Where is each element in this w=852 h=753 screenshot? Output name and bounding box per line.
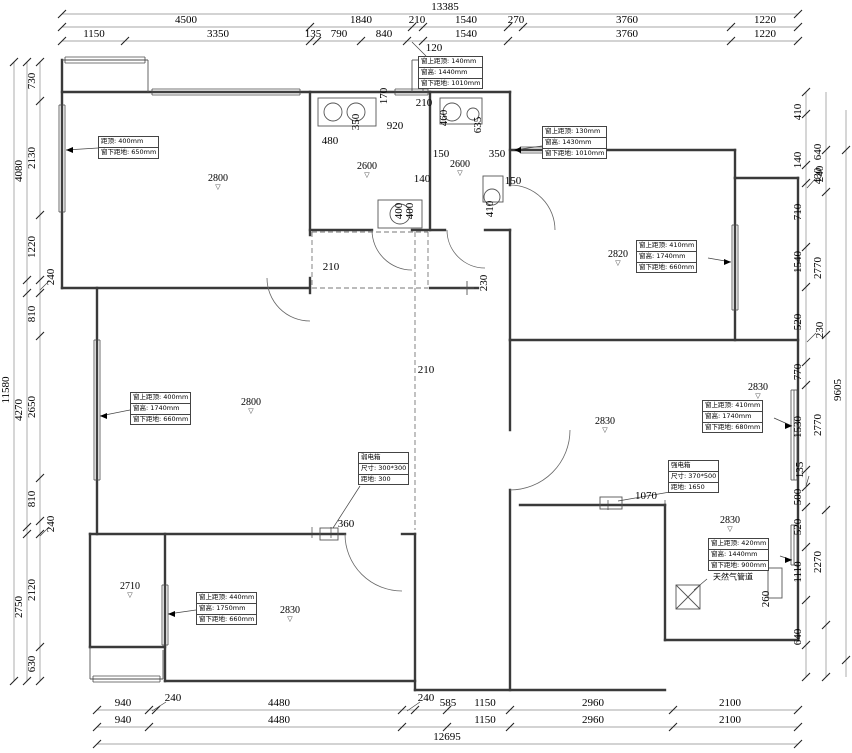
interior-dimension-label: 350 <box>350 114 362 131</box>
arrow-icon <box>66 147 73 153</box>
fixture-circle <box>324 103 342 121</box>
callout-line: 尺寸: 300*300 <box>359 464 408 475</box>
dimension-label: 2770 <box>812 257 824 279</box>
floor-height-triangle-icon: ▽ <box>457 171 462 176</box>
floor-height-triangle-icon: ▽ <box>287 617 292 622</box>
callout-box: 窗上距顶: 400mm窗高: 1740mm窗下距地: 660mm <box>130 392 191 425</box>
dimension-label: 1220 <box>754 28 776 40</box>
interior-dimension-label: 920 <box>387 120 404 132</box>
interior-dimension-label: 480 <box>322 135 339 147</box>
interior-dimension-label: 360 <box>338 518 355 530</box>
dimension-label: 2100 <box>719 714 741 726</box>
leader-label: 120 <box>426 42 443 54</box>
room-height-label: 2600▽ <box>450 160 470 176</box>
callout-line: 窗高: 1740mm <box>703 412 762 423</box>
interior-dimension-label: 260 <box>760 591 772 608</box>
interior-dimension-label: 350 <box>489 148 506 160</box>
dimension-label: 410 <box>792 104 804 121</box>
callout-line: 窗高: 1440mm <box>419 68 482 79</box>
dimension-label: 810 <box>26 306 38 323</box>
callout-line: 窗高: 1430mm <box>543 138 606 149</box>
callout-line: 窗下距地: 660mm <box>197 615 256 625</box>
dimension-label: 1540 <box>455 28 477 40</box>
dimension-label: 3350 <box>207 28 229 40</box>
dimension-label: 270 <box>508 14 525 26</box>
arrow-icon <box>514 147 521 153</box>
callout-box: 窗上距顶: 410mm窗高: 1740mm窗下距地: 660mm <box>636 240 697 273</box>
door-arc <box>447 230 485 268</box>
floor-height-triangle-icon: ▽ <box>364 173 369 178</box>
callout-line: 距地: 1650 <box>669 483 718 493</box>
dimension-label: 640 <box>792 629 804 646</box>
callout-line: 窗下距地: 1010mm <box>543 149 606 159</box>
callout-box: 距顶: 400mm窗下距地: 650mm <box>98 136 159 159</box>
callout-line: 弱电箱 <box>359 453 408 464</box>
dimension-label: 1150 <box>474 714 496 726</box>
interior-dimension-label: 140 <box>414 173 431 185</box>
leader-label: 240 <box>418 692 435 704</box>
dimension-label: 2100 <box>719 697 741 709</box>
dimension-label: 2650 <box>26 396 38 418</box>
callout-line: 窗下距地: 680mm <box>703 423 762 433</box>
callout-line: 窗上距顶: 140mm <box>419 57 482 68</box>
callout-line: 强电箱 <box>669 461 718 472</box>
dimension-label: 710 <box>792 204 804 221</box>
callout-line: 距地: 300 <box>359 475 408 485</box>
dimension-label: 630 <box>26 656 38 673</box>
dimension-label: 3760 <box>616 14 638 26</box>
room-height-label: 2820▽ <box>608 250 628 266</box>
dimension-label: 4080 <box>13 160 25 182</box>
dimension-label: 140 <box>792 152 804 169</box>
callout-line: 窗高: 1740mm <box>131 404 190 415</box>
dimension-label: 520 <box>792 519 804 536</box>
dimension-label: 1150 <box>474 697 496 709</box>
dimension-label: 2960 <box>582 714 604 726</box>
interior-dimension-label: 1070 <box>635 490 657 502</box>
dimension-label: 210 <box>409 14 426 26</box>
callout-box: 窗上距顶: 440mm窗高: 1750mm窗下距地: 660mm <box>196 592 257 625</box>
dimension-label: 2130 <box>26 147 38 169</box>
floor-plan-canvas: 1338545001840210154027037601220115033501… <box>0 0 852 753</box>
dimension-label: 4480 <box>268 714 290 726</box>
dimension-label: 1220 <box>754 14 776 26</box>
callout-line: 窗高: 1440mm <box>709 550 768 561</box>
floor-height-triangle-icon: ▽ <box>755 394 760 399</box>
interior-dimension-label: 170 <box>378 88 390 105</box>
callout-line: 窗下距地: 1010mm <box>419 79 482 89</box>
dimension-label: 1220 <box>26 236 38 258</box>
leader-label: 135 <box>794 462 806 479</box>
callout-line: 窗高: 1740mm <box>637 252 696 263</box>
arrow-icon <box>724 259 731 265</box>
dimension-label: 500 <box>792 489 804 506</box>
leader-label: 240 <box>45 269 57 286</box>
floor-height-triangle-icon: ▽ <box>127 593 132 598</box>
leader-label: 240 <box>45 516 57 533</box>
room-height-label: 2710▽ <box>120 582 140 598</box>
dimension-label: 770 <box>792 364 804 381</box>
callout-line: 窗上距顶: 440mm <box>197 593 256 604</box>
callout-box: 窗上距顶: 140mm窗高: 1440mm窗下距地: 1010mm <box>418 56 483 89</box>
interior-dimension-label: 150 <box>433 148 450 160</box>
floor-height-triangle-icon: ▽ <box>727 527 732 532</box>
leader-label: 230 <box>814 322 826 339</box>
callout-box: 强电箱尺寸: 370*500距地: 1650 <box>668 460 719 493</box>
dimension-label: 2960 <box>582 697 604 709</box>
callout-line: 窗下距地: 900mm <box>709 561 768 571</box>
callout-box: 窗上距顶: 420mm窗高: 1440mm窗下距地: 900mm <box>708 538 769 571</box>
interior-dimension-label: 210 <box>323 261 340 273</box>
room-height-label: 2600▽ <box>357 162 377 178</box>
floor-height-triangle-icon: ▽ <box>248 409 253 414</box>
leader-line <box>694 579 707 590</box>
interior-dimension-label: 210 <box>416 97 433 109</box>
arrow-icon <box>168 611 175 617</box>
dimension-label: 1150 <box>83 28 105 40</box>
dimension-label: 4500 <box>175 14 197 26</box>
leader-line <box>412 42 426 56</box>
door-arc <box>267 278 310 321</box>
fixture-rect <box>600 497 622 509</box>
dimension-label: 1540 <box>455 14 477 26</box>
callout-line: 窗下距地: 660mm <box>131 415 190 425</box>
dimension-label: 2750 <box>13 596 25 618</box>
callout-line: 窗上距顶: 400mm <box>131 393 190 404</box>
interior-dimension-label: 400 <box>404 203 416 220</box>
dimension-label: 4480 <box>268 697 290 709</box>
callout-box: 窗上距顶: 130mm窗高: 1430mm窗下距地: 1010mm <box>542 126 607 159</box>
dimension-label: 2120 <box>26 579 38 601</box>
room-height-label: 2800▽ <box>208 174 228 190</box>
room-height-label: 2830▽ <box>595 417 615 433</box>
floor-height-triangle-icon: ▽ <box>602 428 607 433</box>
dimension-label: 1110 <box>792 561 804 582</box>
dimension-label: 9605 <box>832 379 844 401</box>
callout-box: 窗上距顶: 410mm窗高: 1740mm窗下距地: 680mm <box>702 400 763 433</box>
room-height-label: 2830▽ <box>280 606 300 622</box>
callout-line: 窗上距顶: 410mm <box>703 401 762 412</box>
dimension-label: 940 <box>115 697 132 709</box>
door-arc <box>510 185 555 230</box>
floor-height-triangle-icon: ▽ <box>215 185 220 190</box>
dimension-label: 12695 <box>433 731 461 743</box>
room-height-label: 2830▽ <box>748 383 768 399</box>
dimension-label: 3760 <box>616 28 638 40</box>
callout-box: 弱电箱尺寸: 300*300距地: 300 <box>358 452 409 485</box>
room-height-label: 2830▽ <box>720 516 740 532</box>
door-arc <box>510 430 570 490</box>
dimension-label: 810 <box>26 491 38 508</box>
interior-dimension-label: 210 <box>418 364 435 376</box>
dimension-label: 840 <box>376 28 393 40</box>
callout-line: 窗上距顶: 420mm <box>709 539 768 550</box>
interior-dimension-label: 天然气管道 <box>713 572 753 583</box>
callout-line: 窗上距顶: 130mm <box>543 127 606 138</box>
callout-line: 距顶: 400mm <box>99 137 158 148</box>
callout-line: 窗高: 1750mm <box>197 604 256 615</box>
dimension-label: 2270 <box>812 551 824 573</box>
callout-line: 窗下距地: 660mm <box>637 263 696 273</box>
dimension-label: 1540 <box>792 251 804 273</box>
dimension-label: 940 <box>115 714 132 726</box>
interior-dimension-label: 410 <box>484 201 496 218</box>
room-height-label: 2800▽ <box>241 398 261 414</box>
interior-dimension-label: 150 <box>505 175 522 187</box>
dimension-label: 1840 <box>350 14 372 26</box>
dimension-label: 790 <box>331 28 348 40</box>
interior-dimension-label: 230 <box>478 275 490 292</box>
interior-dimension-label: 635 <box>472 117 484 134</box>
dimension-label: 585 <box>440 697 457 709</box>
callout-line: 窗下距地: 650mm <box>99 148 158 158</box>
dimension-label: 640 <box>812 144 824 161</box>
door-arc <box>372 230 412 270</box>
dimension-label: 2770 <box>812 414 824 436</box>
dimension-label: 135 <box>305 28 322 40</box>
interior-dimension-label: 460 <box>438 110 450 127</box>
leader-label: 240 <box>165 692 182 704</box>
dimension-label: 730 <box>26 73 38 90</box>
floor-plan-drawing <box>0 0 852 753</box>
arrow-icon <box>100 413 107 419</box>
dimension-label: 520 <box>792 314 804 331</box>
dimension-label: 1530 <box>792 416 804 438</box>
door-arc <box>345 534 402 591</box>
dimension-label: 13385 <box>431 1 459 13</box>
callout-line: 窗上距顶: 410mm <box>637 241 696 252</box>
dimension-label: 4270 <box>13 399 25 421</box>
callout-line: 尺寸: 370*500 <box>669 472 718 483</box>
callout-leader-line <box>774 418 792 426</box>
leader-label: 240 <box>814 166 826 183</box>
dimension-label: 11580 <box>0 376 12 403</box>
floor-height-triangle-icon: ▽ <box>615 261 620 266</box>
